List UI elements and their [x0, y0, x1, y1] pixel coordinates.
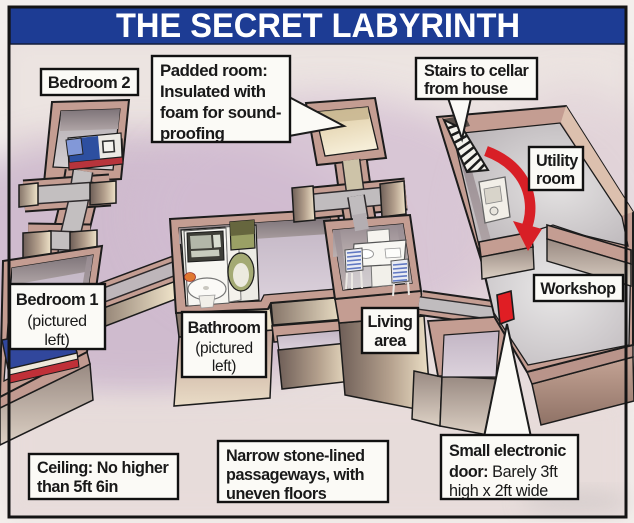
- svg-text:Living: Living: [368, 313, 413, 331]
- svg-text:Bathroom: Bathroom: [188, 319, 261, 337]
- svg-text:left): left): [44, 332, 69, 349]
- svg-text:room: room: [536, 170, 575, 188]
- svg-text:Stairs to cellar: Stairs to cellar: [424, 62, 530, 80]
- svg-text:Narrow stone-lined: Narrow stone-lined: [226, 447, 365, 465]
- svg-text:Bedroom 2: Bedroom 2: [48, 74, 130, 92]
- svg-text:uneven floors: uneven floors: [226, 485, 327, 503]
- svg-text:Padded room:: Padded room:: [160, 61, 267, 80]
- svg-text:proofing: proofing: [160, 124, 225, 143]
- svg-text:left): left): [212, 358, 236, 375]
- svg-text:Utility: Utility: [536, 152, 578, 170]
- svg-text:Insulated with: Insulated with: [160, 82, 266, 101]
- svg-text:(pictured: (pictured: [27, 313, 87, 330]
- svg-text:from house: from house: [424, 80, 508, 98]
- svg-text:high x 2ft wide: high x 2ft wide: [449, 482, 548, 500]
- svg-text:Ceiling: No higher: Ceiling: No higher: [37, 459, 169, 477]
- svg-text:Bedroom 1: Bedroom 1: [16, 291, 98, 309]
- svg-text:(pictured: (pictured: [195, 340, 253, 357]
- svg-text:than 5ft 6in: than 5ft 6in: [37, 478, 118, 496]
- svg-text:THE SECRET LABYRINTH: THE SECRET LABYRINTH: [116, 7, 520, 45]
- svg-text:Small electronic: Small electronic: [449, 442, 566, 460]
- svg-text:door: Barely 3ft: door: Barely 3ft: [449, 463, 558, 481]
- svg-text:area: area: [374, 332, 407, 350]
- svg-text:Workshop: Workshop: [540, 280, 616, 298]
- svg-text:foam for sound-: foam for sound-: [160, 103, 281, 122]
- svg-text:passageways, with: passageways, with: [226, 466, 364, 484]
